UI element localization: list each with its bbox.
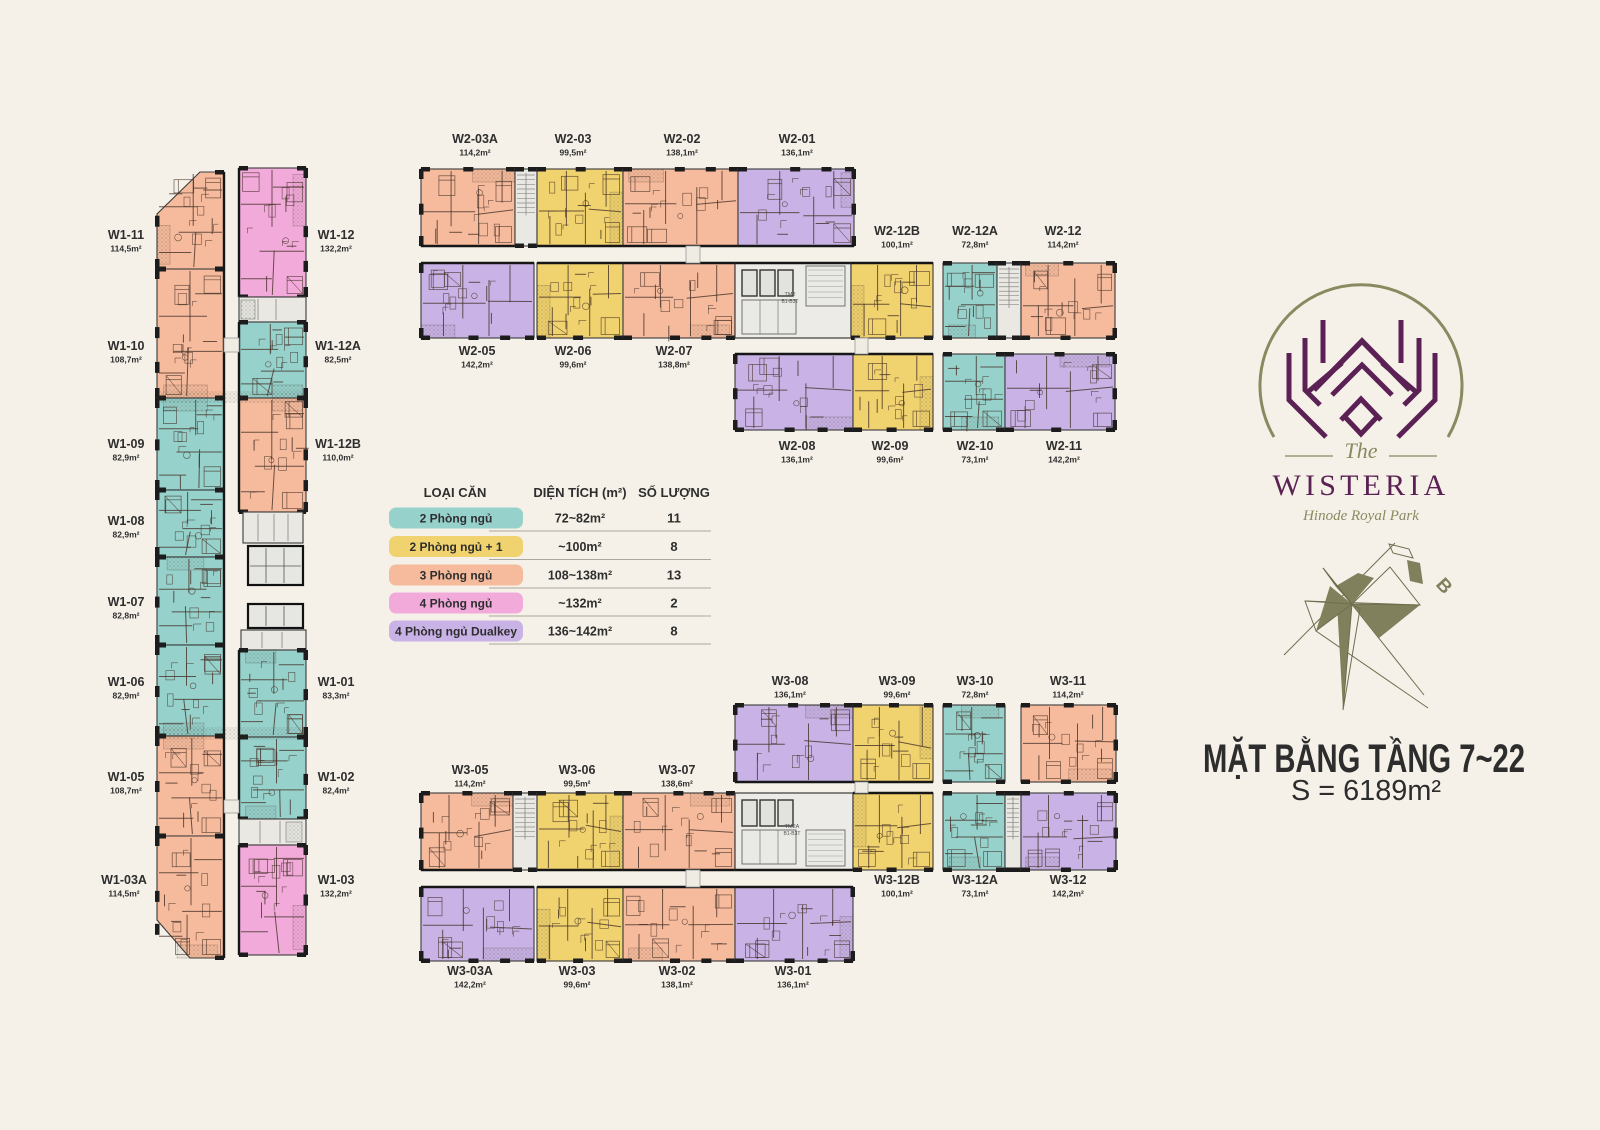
svg-text:136,1m²: 136,1m²	[777, 980, 809, 990]
svg-text:W1-08: W1-08	[108, 514, 145, 528]
svg-text:W1-07: W1-07	[108, 595, 145, 609]
svg-text:W2-07: W2-07	[656, 344, 693, 358]
svg-text:4 Phòng ngủ Dualkey: 4 Phòng ngủ Dualkey	[395, 625, 517, 639]
svg-text:W3-01: W3-01	[775, 964, 812, 978]
svg-text:SỐ LƯỢNG: SỐ LƯỢNG	[638, 485, 710, 500]
svg-text:W2-03A: W2-03A	[452, 132, 498, 146]
svg-text:82,5m²: 82,5m²	[325, 355, 352, 365]
svg-text:The: The	[1345, 438, 1378, 463]
svg-text:136,1m²: 136,1m²	[781, 455, 813, 465]
svg-text:W1-09: W1-09	[108, 437, 145, 451]
svg-text:82,9m²: 82,9m²	[113, 691, 140, 701]
svg-text:W3-10: W3-10	[957, 674, 994, 688]
svg-text:73,1m²: 73,1m²	[962, 889, 989, 899]
svg-text:99,5m²: 99,5m²	[564, 779, 591, 789]
svg-text:110,0m²: 110,0m²	[322, 453, 353, 463]
svg-text:2 Phòng ngủ + 1: 2 Phòng ngủ + 1	[409, 540, 502, 554]
svg-text:W2-12B: W2-12B	[874, 224, 920, 238]
svg-text:W1-03A: W1-03A	[101, 873, 147, 887]
svg-text:132,2m²: 132,2m²	[320, 889, 352, 899]
svg-text:82,9m²: 82,9m²	[113, 453, 140, 463]
svg-text:82,4m²: 82,4m²	[323, 786, 350, 796]
svg-text:~100m²: ~100m²	[558, 540, 601, 554]
svg-text:W3-02: W3-02	[659, 964, 696, 978]
svg-text:142,2m²: 142,2m²	[461, 360, 493, 370]
svg-text:100,1m²: 100,1m²	[881, 889, 913, 899]
svg-text:W2-01: W2-01	[779, 132, 816, 146]
svg-text:Hinode Royal Park: Hinode Royal Park	[1302, 508, 1419, 524]
svg-text:W3-11: W3-11	[1050, 674, 1086, 688]
svg-text:114,5m²: 114,5m²	[110, 244, 141, 254]
svg-text:B1-B3T: B1-B3T	[784, 831, 801, 837]
svg-text:142,2m²: 142,2m²	[1048, 455, 1080, 465]
svg-text:138,6m²: 138,6m²	[661, 779, 693, 789]
svg-text:8: 8	[670, 624, 677, 639]
svg-text:W1-12A: W1-12A	[315, 339, 361, 353]
svg-text:W1-12B: W1-12B	[315, 437, 361, 451]
svg-text:W1-05: W1-05	[108, 770, 145, 784]
svg-text:W1-03: W1-03	[318, 873, 355, 887]
svg-text:99,6m²: 99,6m²	[564, 980, 591, 990]
svg-text:W3-07: W3-07	[659, 763, 696, 777]
svg-text:138,8m²: 138,8m²	[658, 360, 690, 370]
svg-text:W3-12B: W3-12B	[874, 873, 920, 887]
svg-text:4 Phòng ngủ: 4 Phòng ngủ	[420, 597, 493, 611]
svg-text:W2-10: W2-10	[957, 439, 994, 453]
svg-text:W1-12: W1-12	[318, 228, 355, 242]
svg-text:13: 13	[667, 568, 681, 583]
svg-text:TM2A: TM2A	[785, 824, 800, 830]
svg-text:W2-05: W2-05	[459, 344, 496, 358]
svg-text:11: 11	[667, 511, 681, 526]
svg-text:W2-12A: W2-12A	[952, 224, 998, 238]
svg-text:99,6m²: 99,6m²	[877, 455, 904, 465]
svg-text:W1-10: W1-10	[108, 339, 145, 353]
svg-text:W1-01: W1-01	[318, 675, 355, 689]
svg-text:W3-05: W3-05	[452, 763, 489, 777]
svg-text:142,2m²: 142,2m²	[454, 980, 486, 990]
svg-text:100,1m²: 100,1m²	[881, 240, 913, 250]
svg-text:W2-11: W2-11	[1046, 439, 1082, 453]
svg-text:TM2: TM2	[785, 292, 796, 298]
svg-text:W3-03A: W3-03A	[447, 964, 493, 978]
svg-text:138,1m²: 138,1m²	[666, 148, 698, 158]
svg-text:99,6m²: 99,6m²	[560, 360, 587, 370]
svg-text:W1-06: W1-06	[108, 675, 145, 689]
svg-text:114,2m²: 114,2m²	[1052, 690, 1083, 700]
svg-text:W1-02: W1-02	[318, 770, 355, 784]
svg-text:W2-03: W2-03	[555, 132, 592, 146]
svg-text:LOẠI CĂN: LOẠI CĂN	[424, 485, 487, 500]
svg-text:~132m²: ~132m²	[558, 597, 601, 611]
svg-text:132,2m²: 132,2m²	[320, 244, 352, 254]
svg-text:S = 6189m²: S = 6189m²	[1291, 775, 1441, 807]
svg-text:114,2m²: 114,2m²	[459, 148, 490, 158]
svg-text:W3-03: W3-03	[559, 964, 596, 978]
svg-text:82,8m²: 82,8m²	[113, 611, 140, 621]
svg-text:8: 8	[670, 539, 677, 554]
svg-text:2: 2	[670, 596, 677, 611]
svg-text:83,3m²: 83,3m²	[323, 691, 350, 701]
svg-text:W1-11: W1-11	[108, 228, 144, 242]
svg-text:99,6m²: 99,6m²	[884, 690, 911, 700]
svg-text:82,9m²: 82,9m²	[113, 530, 140, 540]
svg-text:W2-12: W2-12	[1045, 224, 1082, 238]
svg-text:108,7m²: 108,7m²	[110, 786, 142, 796]
svg-text:99,5m²: 99,5m²	[560, 148, 587, 158]
svg-text:W2-06: W2-06	[555, 344, 592, 358]
svg-text:73,1m²: 73,1m²	[962, 455, 989, 465]
svg-text:B1-B3T: B1-B3T	[782, 299, 799, 305]
svg-text:138,1m²: 138,1m²	[661, 980, 693, 990]
svg-text:WISTERIA: WISTERIA	[1273, 469, 1450, 502]
svg-text:142,2m²: 142,2m²	[1052, 889, 1084, 899]
svg-text:136,1m²: 136,1m²	[781, 148, 813, 158]
svg-text:DIỆN TÍCH (m²): DIỆN TÍCH (m²)	[533, 485, 626, 500]
svg-text:W3-09: W3-09	[879, 674, 916, 688]
svg-text:72~82m²: 72~82m²	[555, 512, 605, 526]
svg-text:136~142m²: 136~142m²	[548, 625, 612, 639]
svg-text:W2-09: W2-09	[872, 439, 909, 453]
svg-text:72,8m²: 72,8m²	[962, 690, 989, 700]
svg-text:W3-06: W3-06	[559, 763, 596, 777]
svg-text:108~138m²: 108~138m²	[548, 569, 612, 583]
svg-text:108,7m²: 108,7m²	[110, 355, 142, 365]
svg-text:114,5m²: 114,5m²	[108, 889, 139, 899]
svg-text:W2-02: W2-02	[664, 132, 701, 146]
svg-text:W3-12A: W3-12A	[952, 873, 998, 887]
svg-text:72,8m²: 72,8m²	[962, 240, 989, 250]
svg-text:114,2m²: 114,2m²	[1047, 240, 1078, 250]
svg-text:3 Phòng ngủ: 3 Phòng ngủ	[420, 569, 493, 583]
svg-text:136,1m²: 136,1m²	[774, 690, 806, 700]
svg-text:114,2m²: 114,2m²	[454, 779, 485, 789]
svg-text:2 Phòng ngủ: 2 Phòng ngủ	[420, 512, 493, 526]
svg-text:W2-08: W2-08	[779, 439, 816, 453]
svg-text:W3-08: W3-08	[772, 674, 809, 688]
svg-text:W3-12: W3-12	[1050, 873, 1087, 887]
